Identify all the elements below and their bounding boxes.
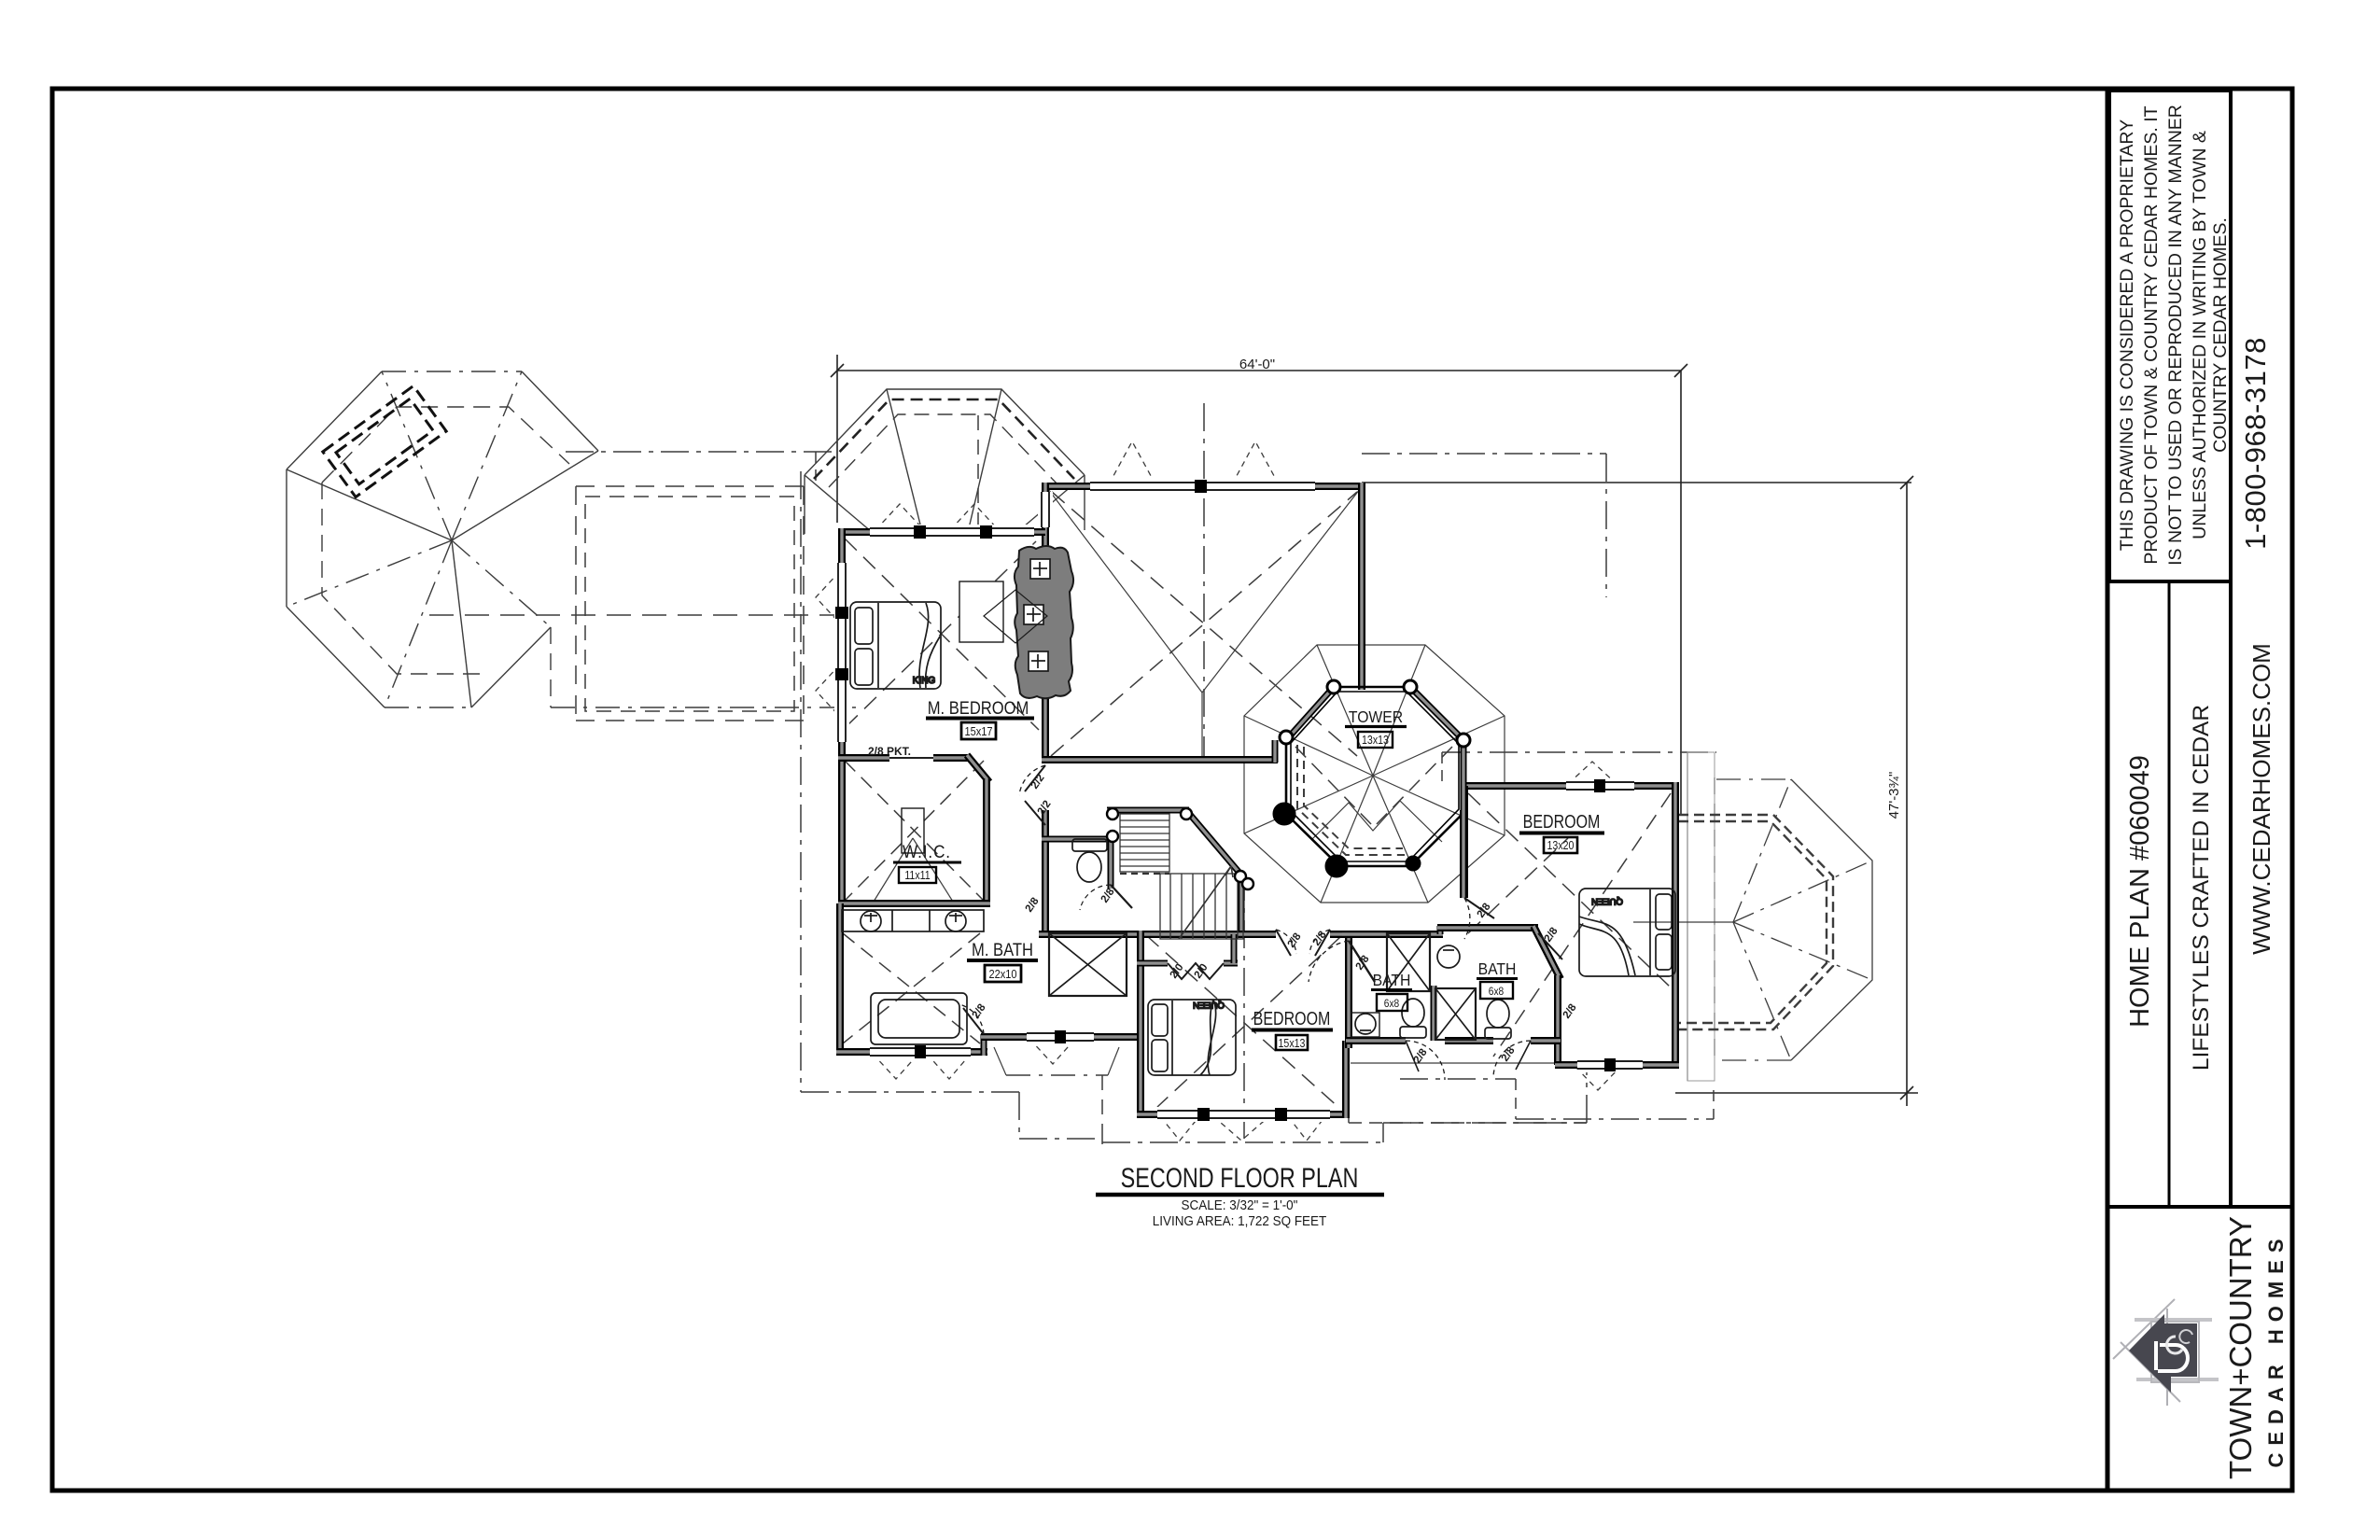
- svg-text:SECOND FLOOR PLAN: SECOND FLOOR PLAN: [1121, 1162, 1359, 1193]
- svg-text:LIVING AREA: 1,722 SQ FEET: LIVING AREA: 1,722 SQ FEET: [1153, 1213, 1327, 1229]
- svg-text:BATH: BATH: [1373, 971, 1411, 989]
- svg-text:M. BEDROOM: M. BEDROOM: [928, 698, 1029, 719]
- svg-text:THIS DRAWING IS CONSIDERED A P: THIS DRAWING IS CONSIDERED A PROPRIETARY: [2117, 119, 2137, 551]
- svg-text:2/8 PKT.: 2/8 PKT.: [868, 745, 911, 758]
- svg-text:KING: KING: [913, 676, 936, 686]
- svg-text:22x10: 22x10: [988, 967, 1016, 981]
- svg-text:BEDROOM: BEDROOM: [1523, 811, 1601, 832]
- svg-text:HOME PLAN #060049: HOME PLAN #060049: [2125, 755, 2155, 1028]
- svg-text:13x13: 13x13: [1362, 734, 1389, 747]
- svg-text:LIFESTYLES CRAFTED IN CEDAR: LIFESTYLES CRAFTED IN CEDAR: [2189, 705, 2214, 1071]
- svg-text:47'-3¾": 47'-3¾": [1886, 772, 1902, 819]
- svg-text:PRODUCT OF TOWN & COUNTRY CEDA: PRODUCT OF TOWN & COUNTRY CEDAR HOMES. I…: [2141, 105, 2162, 564]
- svg-text:COUNTRY CEDAR HOMES.: COUNTRY CEDAR HOMES.: [2210, 217, 2231, 453]
- svg-text:IS NOT TO USED OR REPRODUCED: IS NOT TO USED OR REPRODUCED IN ANY MANN…: [2165, 105, 2186, 566]
- svg-text:64'-0": 64'-0": [1239, 357, 1275, 372]
- svg-text:11x11: 11x11: [904, 869, 930, 882]
- svg-text:BEDROOM: BEDROOM: [1253, 1008, 1331, 1029]
- svg-text:TOWER: TOWER: [1349, 707, 1403, 726]
- svg-text:BATH: BATH: [1478, 959, 1517, 978]
- svg-text:6x8: 6x8: [1384, 998, 1399, 1010]
- svg-text:TOWN+COUNTRY: TOWN+COUNTRY: [2223, 1216, 2258, 1479]
- svg-text:6x8: 6x8: [1489, 986, 1504, 998]
- svg-text:1-800-968-3178: 1-800-968-3178: [2239, 337, 2272, 550]
- svg-text:UNLESS AUTHORIZED IN WRITING B: UNLESS AUTHORIZED IN WRITING BY TOWN &: [2190, 131, 2210, 539]
- svg-text:15x13: 15x13: [1279, 1037, 1306, 1050]
- svg-text:W.I.C.: W.I.C.: [903, 842, 951, 861]
- svg-text:CEDAR HOMES: CEDAR HOMES: [2264, 1231, 2288, 1467]
- svg-text:WWW.CEDARHOMES.COM: WWW.CEDARHOMES.COM: [2247, 643, 2275, 955]
- svg-text:15x17: 15x17: [964, 724, 992, 738]
- svg-text:QUEEN: QUEEN: [1591, 896, 1623, 906]
- svg-text:M. BATH: M. BATH: [972, 940, 1033, 960]
- svg-text:QUEEN: QUEEN: [1193, 1000, 1225, 1010]
- svg-text:13x20: 13x20: [1547, 839, 1575, 852]
- svg-text:SCALE: 3/32" = 1'-0": SCALE: 3/32" = 1'-0": [1182, 1197, 1298, 1213]
